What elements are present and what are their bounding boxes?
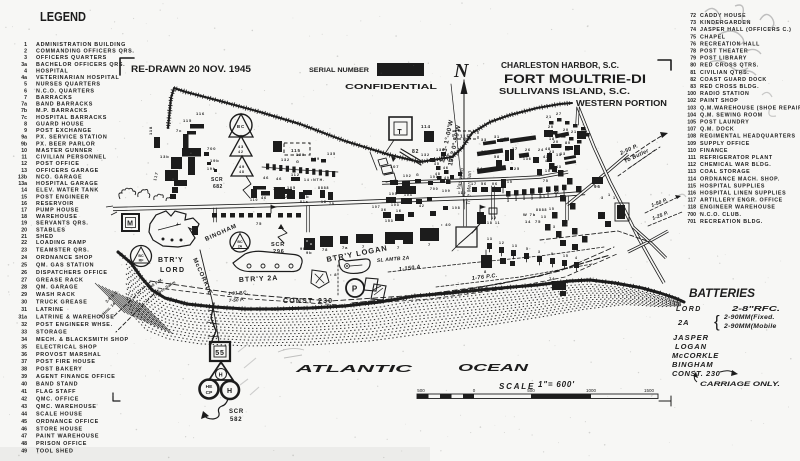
svg-text:30: 30 [526, 136, 532, 140]
svg-text:ELECTRICAL SHOP: ELECTRICAL SHOP [36, 344, 97, 350]
svg-text:80: 80 [565, 141, 571, 145]
svg-text:48: 48 [239, 170, 245, 174]
svg-text:230: 230 [318, 298, 333, 305]
svg-text:44: 44 [21, 411, 27, 417]
svg-text:15: 15 [21, 194, 27, 200]
svg-text:55: 55 [215, 350, 225, 357]
svg-text:1: 1 [608, 193, 611, 197]
svg-text:102: 102 [403, 174, 412, 178]
svg-text:37: 37 [21, 359, 27, 365]
svg-text:LATRINE: LATRINE [36, 307, 64, 313]
svg-text:29: 29 [21, 292, 27, 298]
svg-text:Q.M. DOCK: Q.M. DOCK [700, 127, 734, 133]
svg-text:VETERINARIAN HOSPITAL: VETERINARIAN HOSPITAL [36, 75, 119, 81]
svg-text:20: 20 [21, 227, 27, 233]
svg-text:296: 296 [273, 249, 285, 255]
svg-text:7-50 P.: 7-50 P. [229, 297, 245, 303]
svg-text:BAND BARRACKS: BAND BARRACKS [36, 102, 93, 108]
svg-text:SULLIVANS ISLAND, S.C.: SULLIVANS ISLAND, S.C. [499, 86, 630, 96]
svg-text:8: 8 [24, 121, 27, 127]
svg-text:QMC. WAREHOUSE: QMC. WAREHOUSE [36, 404, 97, 410]
svg-text:WESTERN PORTION: WESTERN PORTION [576, 98, 667, 108]
svg-text:46: 46 [263, 175, 269, 180]
svg-text:113: 113 [688, 169, 696, 175]
svg-text:3: 3 [531, 196, 534, 200]
svg-text:3: 3 [515, 198, 518, 202]
svg-text:7a: 7a [342, 245, 348, 250]
svg-text:74: 74 [690, 27, 696, 33]
svg-text:POST ENGINEER: POST ENGINEER [36, 194, 89, 200]
svg-text:78: 78 [690, 49, 696, 55]
svg-text:20: 20 [563, 128, 569, 132]
svg-text:3: 3 [523, 197, 526, 201]
svg-text:109: 109 [442, 189, 451, 193]
svg-text:42: 42 [238, 150, 244, 154]
svg-text:9: 9 [551, 252, 554, 256]
svg-text:15: 15 [507, 180, 513, 184]
svg-text:32: 32 [21, 322, 27, 328]
svg-text:2-90MM(Fixed.: 2-90MM(Fixed. [723, 314, 775, 321]
svg-text:McCORKLE: McCORKLE [672, 351, 719, 360]
svg-text:42: 42 [419, 204, 425, 208]
svg-text:6: 6 [447, 153, 450, 157]
svg-text:27: 27 [21, 277, 27, 283]
svg-text:CIVILIAN PERSONNEL: CIVILIAN PERSONNEL [36, 155, 107, 161]
svg-text:132: 132 [421, 153, 430, 157]
svg-text:OFFICERS QUARTERS: OFFICERS QUARTERS [36, 55, 107, 61]
svg-text:3: 3 [601, 196, 604, 200]
svg-text:TEAMSTER QRS.: TEAMSTER QRS. [36, 247, 89, 253]
svg-text:FINANCE: FINANCE [700, 148, 728, 154]
svg-text:13: 13 [512, 244, 518, 248]
svg-text:42: 42 [21, 396, 27, 402]
svg-text:17: 17 [21, 208, 27, 214]
svg-text:POST OFFICE: POST OFFICE [36, 161, 80, 167]
svg-text:RECREATION HALL: RECREATION HALL [700, 41, 760, 47]
svg-text:46: 46 [276, 176, 282, 181]
svg-text:101: 101 [430, 175, 439, 179]
svg-text:107: 107 [687, 127, 696, 133]
svg-text:CONFIDENTIAL: CONFIDENTIAL [345, 82, 438, 91]
svg-text:48: 48 [21, 441, 27, 447]
svg-text:14: 14 [21, 188, 27, 194]
svg-text:1000: 1000 [586, 388, 597, 393]
svg-text:BC: BC [237, 240, 243, 244]
svg-text:QMC. OFFICE: QMC. OFFICE [36, 396, 79, 402]
svg-text:115: 115 [460, 134, 470, 139]
svg-text:LOGAN: LOGAN [675, 342, 707, 351]
svg-text:13a: 13a [18, 181, 27, 187]
svg-text:• 40: • 40 [441, 222, 452, 227]
svg-text:1: 1 [24, 42, 27, 48]
svg-text:COAL STORAGE: COAL STORAGE [700, 169, 750, 175]
svg-text:18: 18 [549, 137, 555, 141]
svg-text:BC: BC [138, 254, 144, 258]
svg-text:6: 6 [24, 88, 27, 94]
svg-text:16: 16 [21, 201, 27, 207]
svg-text:14: 14 [304, 178, 310, 182]
svg-text:104: 104 [404, 193, 413, 197]
svg-text:Q.M. SEWING ROOM: Q.M. SEWING ROOM [700, 112, 763, 118]
svg-text:+: + [176, 222, 180, 228]
svg-text:100: 100 [687, 91, 696, 97]
svg-text:56: 56 [481, 182, 487, 186]
svg-text:SCR: SCR [211, 177, 223, 183]
svg-text:HOSPITAL SUPPLIES: HOSPITAL SUPPLIES [700, 183, 765, 189]
svg-text:POST LAUNDRY: POST LAUNDRY [700, 120, 749, 126]
svg-text:HOSPITAL BARRACKS: HOSPITAL BARRACKS [36, 115, 107, 121]
svg-text:SERVANTS QRS.: SERVANTS QRS. [36, 221, 89, 227]
svg-text:POST BAKERY: POST BAKERY [36, 367, 82, 373]
svg-text:72: 72 [554, 190, 560, 194]
svg-text:41: 41 [21, 389, 27, 395]
svg-text:682: 682 [213, 184, 223, 190]
svg-text:75: 75 [535, 219, 541, 224]
svg-text:ELEV. WATER TANK: ELEV. WATER TANK [36, 188, 99, 194]
svg-text:116: 116 [196, 111, 205, 116]
svg-text:13: 13 [541, 215, 547, 219]
svg-text:CADDY HOUSE: CADDY HOUSE [700, 13, 746, 19]
svg-text:RF: RF [139, 259, 145, 263]
svg-text:115: 115 [688, 183, 696, 189]
svg-text:RED CROSS BLDG.: RED CROSS BLDG. [700, 84, 759, 90]
svg-text:112: 112 [688, 162, 696, 168]
svg-text:15: 15 [545, 169, 551, 173]
svg-text:4: 4 [575, 256, 578, 260]
svg-text:2: 2 [24, 49, 27, 55]
svg-text:RADIO STATION: RADIO STATION [700, 91, 749, 97]
svg-text:36: 36 [381, 208, 387, 212]
svg-text:COAST GUARD DOCK: COAST GUARD DOCK [700, 77, 767, 83]
svg-text:35: 35 [21, 344, 27, 350]
svg-text:REFRIGERATOR PLANT: REFRIGERATOR PLANT [700, 155, 773, 161]
svg-text:42: 42 [265, 192, 271, 196]
svg-text:JASPER HALL (OFFICERS C.): JASPER HALL (OFFICERS C.) [700, 27, 792, 33]
svg-text:PAINT SHOP: PAINT SHOP [700, 98, 738, 104]
svg-text:8888: 8888 [318, 186, 329, 190]
svg-text:12: 12 [491, 216, 497, 220]
svg-text:{: { [714, 312, 720, 331]
svg-text:T: T [397, 129, 402, 136]
svg-text:CHEMICAL WAR BLDG.: CHEMICAL WAR BLDG. [700, 162, 771, 168]
svg-text:TOOL SHED: TOOL SHED [36, 449, 74, 455]
svg-text:HE: HE [206, 384, 213, 390]
svg-text:135: 135 [327, 152, 336, 156]
svg-text:700: 700 [687, 212, 696, 218]
svg-text:1: 1 [613, 196, 616, 200]
svg-text:79: 79 [690, 56, 696, 62]
svg-text:18: 18 [487, 221, 493, 225]
svg-text:13: 13 [21, 168, 27, 174]
svg-text:LORD: LORD [676, 306, 702, 313]
svg-text:105: 105 [687, 120, 696, 126]
svg-text:78: 78 [322, 247, 328, 252]
svg-text:HOSPITAL GARAGE: HOSPITAL GARAGE [36, 181, 98, 187]
svg-text:4a: 4a [21, 75, 27, 81]
svg-text:111: 111 [688, 155, 696, 161]
svg-text:BTR'Y: BTR'Y [158, 257, 184, 264]
svg-text:118: 118 [148, 126, 153, 135]
svg-text:11: 11 [495, 221, 501, 225]
svg-text:ENGINEER WAREHOUSE: ENGINEER WAREHOUSE [700, 205, 776, 211]
svg-text:SCR: SCR [271, 242, 285, 248]
svg-text:P: P [352, 285, 358, 294]
svg-text:19b: 19b [210, 158, 220, 163]
svg-text:N.C.O. QUARTERS: N.C.O. QUARTERS [36, 88, 95, 94]
svg-text:PX. BEER PARLOR: PX. BEER PARLOR [36, 141, 96, 147]
svg-text:20: 20 [548, 125, 554, 129]
svg-text:36: 36 [21, 352, 27, 358]
svg-text:3a: 3a [21, 62, 27, 68]
svg-text:BAND STAND: BAND STAND [36, 382, 78, 388]
svg-text:7c: 7c [21, 115, 27, 121]
svg-text:7: 7 [397, 245, 400, 250]
svg-text:31a: 31a [18, 315, 27, 321]
svg-text:114: 114 [688, 176, 696, 182]
svg-text:WAREHOUSE: WAREHOUSE [36, 214, 78, 220]
svg-text:13: 13 [540, 195, 546, 199]
svg-text:75: 75 [543, 179, 549, 183]
svg-text:110: 110 [688, 148, 696, 154]
svg-text:43: 43 [556, 165, 562, 169]
svg-text:16: 16 [396, 209, 402, 213]
svg-text:13b: 13b [160, 154, 170, 159]
svg-text:LEGEND: LEGEND [40, 9, 86, 24]
svg-text:SERIAL NUMBER: SERIAL NUMBER [309, 68, 370, 74]
svg-text:500: 500 [417, 388, 425, 393]
svg-text:74: 74 [549, 276, 555, 281]
svg-text:BARRACKS: BARRACKS [36, 95, 72, 101]
svg-text:21: 21 [571, 130, 577, 134]
svg-text:75: 75 [256, 221, 262, 226]
svg-text:107: 107 [372, 205, 381, 209]
svg-text:110: 110 [458, 191, 466, 195]
svg-text:21: 21 [546, 115, 552, 119]
svg-text:84: 84 [477, 167, 483, 171]
svg-text:FORT MOULTRIE-DI: FORT MOULTRIE-DI [504, 74, 646, 86]
svg-text:48: 48 [545, 147, 551, 151]
svg-text:3: 3 [547, 195, 550, 199]
svg-text:HOSPITAL LINEN SUPPLIES: HOSPITAL LINEN SUPPLIES [700, 191, 786, 197]
svg-text:102: 102 [687, 98, 696, 104]
svg-text:BACHELOR OFFICERS QRS.: BACHELOR OFFICERS QRS. [36, 62, 125, 68]
svg-text:38: 38 [21, 367, 27, 373]
svg-text:112: 112 [291, 173, 300, 177]
svg-text:7c: 7c [176, 128, 182, 133]
svg-text:BATTERIES: BATTERIES [689, 288, 755, 300]
svg-text:103: 103 [391, 203, 400, 207]
svg-text:13: 13 [487, 237, 493, 241]
svg-text:RE-DRAWN 20 NOV. 1945: RE-DRAWN 20 NOV. 1945 [131, 64, 251, 74]
svg-text:19b: 19b [207, 167, 216, 171]
svg-text:QM. GAS STATION: QM. GAS STATION [36, 262, 94, 268]
svg-text:9b: 9b [306, 250, 312, 255]
svg-text:N.C.O. CLUB.: N.C.O. CLUB. [700, 212, 742, 218]
svg-text:2-90MM(Mobile: 2-90MM(Mobile [723, 323, 777, 330]
svg-text:POST ENGINEER WHSE.: POST ENGINEER WHSE. [36, 322, 113, 328]
svg-text:G: G [416, 173, 420, 177]
svg-text:32: 32 [481, 150, 487, 154]
svg-text:DISPATCHERS OFFICE: DISPATCHERS OFFICE [36, 270, 108, 276]
svg-text:701: 701 [687, 219, 696, 225]
svg-text:25: 25 [514, 167, 520, 171]
svg-text:15: 15 [563, 254, 569, 258]
svg-text:LORD: LORD [160, 267, 185, 274]
svg-text:CONST: CONST [283, 298, 314, 305]
svg-text:105: 105 [287, 186, 296, 190]
svg-text:103: 103 [687, 105, 696, 111]
svg-text:7: 7 [24, 95, 27, 101]
svg-text:45: 45 [434, 162, 440, 166]
svg-text:ORDNANCE SHOP: ORDNANCE SHOP [36, 255, 93, 261]
svg-text:107: 107 [390, 164, 399, 169]
svg-text:HOSPITAL: HOSPITAL [36, 68, 68, 74]
svg-text:RESERVOIR: RESERVOIR [36, 201, 74, 207]
svg-text:POST THEATER: POST THEATER [700, 49, 748, 55]
svg-text:75: 75 [329, 202, 335, 206]
svg-text:5: 5 [526, 247, 529, 251]
svg-text:114: 114 [421, 124, 431, 129]
svg-text:47: 47 [448, 159, 454, 163]
svg-text:115: 115 [183, 118, 192, 123]
svg-text:7b: 7b [21, 108, 27, 114]
svg-text:11: 11 [22, 155, 28, 161]
svg-text:104: 104 [687, 112, 696, 118]
svg-text:STABLES: STABLES [36, 227, 66, 233]
svg-text:23: 23 [21, 247, 27, 253]
svg-text:9a: 9a [21, 135, 27, 141]
svg-text:26: 26 [21, 270, 27, 276]
svg-text:WASH RACK: WASH RACK [36, 292, 76, 298]
svg-text:13b: 13b [18, 174, 27, 180]
svg-text:24: 24 [538, 148, 544, 152]
svg-text:105: 105 [389, 192, 398, 196]
svg-text:25: 25 [21, 262, 27, 268]
svg-text:2A: 2A [677, 318, 690, 327]
svg-text:15: 15 [549, 207, 555, 211]
svg-text:19: 19 [21, 221, 27, 227]
svg-text:ADMINISTRATION BUILDING: ADMINISTRATION BUILDING [36, 42, 126, 48]
svg-text:3: 3 [24, 55, 27, 61]
svg-text:3: 3 [538, 250, 541, 254]
svg-text:GREASE RACK: GREASE RACK [36, 277, 84, 283]
svg-text:CP: CP [206, 390, 213, 396]
svg-text:PROVOST MARSHAL: PROVOST MARSHAL [36, 352, 101, 358]
svg-text:AGENT FINANCE OFFICE: AGENT FINANCE OFFICE [36, 374, 116, 380]
svg-text:PUMP HOUSE: PUMP HOUSE [36, 208, 79, 214]
svg-text:3: 3 [507, 199, 510, 203]
svg-text:29: 29 [504, 137, 510, 141]
svg-text:9b: 9b [21, 141, 27, 147]
svg-text:26: 26 [525, 148, 531, 152]
svg-text:ATLANTIC: ATLANTIC [294, 363, 413, 375]
svg-text:GUARD HOUSE: GUARD HOUSE [36, 121, 84, 127]
svg-text:582: 582 [230, 417, 242, 423]
svg-text:1"= 600': 1"= 600' [538, 380, 575, 389]
svg-text:TRUCK GREASE: TRUCK GREASE [36, 300, 88, 306]
svg-text:46: 46 [21, 426, 27, 432]
svg-text:POST EXCHANGE: POST EXCHANGE [36, 128, 92, 134]
svg-text:1500: 1500 [644, 388, 655, 393]
svg-text:CHARLESTON HARBOR, S.C.: CHARLESTON HARBOR, S.C. [501, 61, 619, 70]
svg-text:3: 3 [555, 194, 558, 198]
svg-text:5: 5 [24, 82, 27, 88]
svg-text:STORAGE: STORAGE [36, 329, 67, 335]
svg-text:NURSES QUARTERS: NURSES QUARTERS [36, 82, 101, 88]
svg-text:CHAPEL: CHAPEL [700, 34, 726, 40]
svg-text:139: 139 [436, 148, 445, 152]
svg-text:BINGHAM: BINGHAM [672, 360, 713, 369]
svg-text:30: 30 [21, 300, 27, 306]
svg-text:22: 22 [21, 240, 27, 246]
svg-text:75: 75 [690, 34, 696, 40]
svg-text:STORE HOUSE: STORE HOUSE [36, 426, 83, 432]
svg-text:9: 9 [24, 128, 27, 134]
svg-text:139: 139 [296, 153, 305, 157]
svg-text:109: 109 [687, 141, 696, 147]
svg-text:700: 700 [207, 146, 216, 151]
svg-text:CARRIAGE ONLY.: CARRIAGE ONLY. [700, 381, 780, 388]
svg-text:14: 14 [525, 219, 531, 224]
svg-text:27: 27 [556, 112, 562, 116]
svg-text:46: 46 [443, 166, 449, 170]
svg-text:47: 47 [21, 434, 27, 440]
svg-text:40: 40 [21, 382, 27, 388]
svg-text:PRISON OFFICE: PRISON OFFICE [36, 441, 87, 447]
svg-text:96: 96 [594, 184, 601, 189]
svg-text:NCO. GARAGE: NCO. GARAGE [36, 174, 82, 180]
svg-text:82: 82 [690, 77, 696, 83]
svg-text:H: H [219, 373, 224, 379]
svg-text:116: 116 [688, 191, 696, 197]
svg-text:QM. GARAGE: QM. GARAGE [36, 285, 78, 291]
svg-text:108: 108 [452, 206, 461, 210]
svg-text:3: 3 [553, 225, 556, 229]
svg-text:W 7b: W 7b [523, 212, 536, 217]
svg-text:39: 39 [21, 374, 27, 380]
svg-text:43: 43 [238, 144, 244, 149]
svg-text:18: 18 [21, 214, 27, 220]
svg-text:28: 28 [21, 285, 27, 291]
svg-text:18: 18 [321, 200, 327, 204]
svg-text:81a: 81a [300, 200, 309, 204]
svg-text:RECREATION BLDG.: RECREATION BLDG. [700, 219, 763, 225]
svg-text:27: 27 [512, 147, 518, 151]
svg-text:118: 118 [688, 205, 696, 211]
svg-text:SUPPLY OFFICE: SUPPLY OFFICE [700, 141, 750, 147]
svg-text:4: 4 [24, 68, 27, 74]
svg-text:31: 31 [21, 307, 27, 313]
svg-text:COMMANDING OFFICERS QRS.: COMMANDING OFFICERS QRS. [36, 49, 135, 55]
svg-text:132: 132 [281, 158, 290, 162]
svg-text:2-8"RFC.: 2-8"RFC. [730, 306, 780, 313]
svg-text:MECH. & BLACKSMITH SHOP: MECH. & BLACKSMITH SHOP [36, 337, 129, 343]
svg-text:136: 136 [523, 157, 532, 161]
svg-text:700: 700 [430, 187, 439, 191]
svg-text:49: 49 [21, 449, 27, 455]
svg-text:ORDNANCE MACH. SHOP.: ORDNANCE MACH. SHOP. [700, 176, 780, 182]
svg-text:M.P. BARRACKS: M.P. BARRACKS [36, 108, 88, 114]
svg-text:76: 76 [690, 41, 696, 47]
svg-text:SCALE HOUSE: SCALE HOUSE [36, 411, 83, 417]
svg-text:9b: 9b [300, 246, 306, 251]
svg-text:•NTH.: •NTH. [311, 178, 325, 182]
svg-text:M: M [127, 221, 134, 228]
svg-text:ORDNANCE OFFICE: ORDNANCE OFFICE [36, 419, 99, 425]
svg-text:G: G [296, 160, 300, 164]
svg-text:117: 117 [688, 198, 696, 204]
svg-text:8888: 8888 [536, 208, 547, 212]
